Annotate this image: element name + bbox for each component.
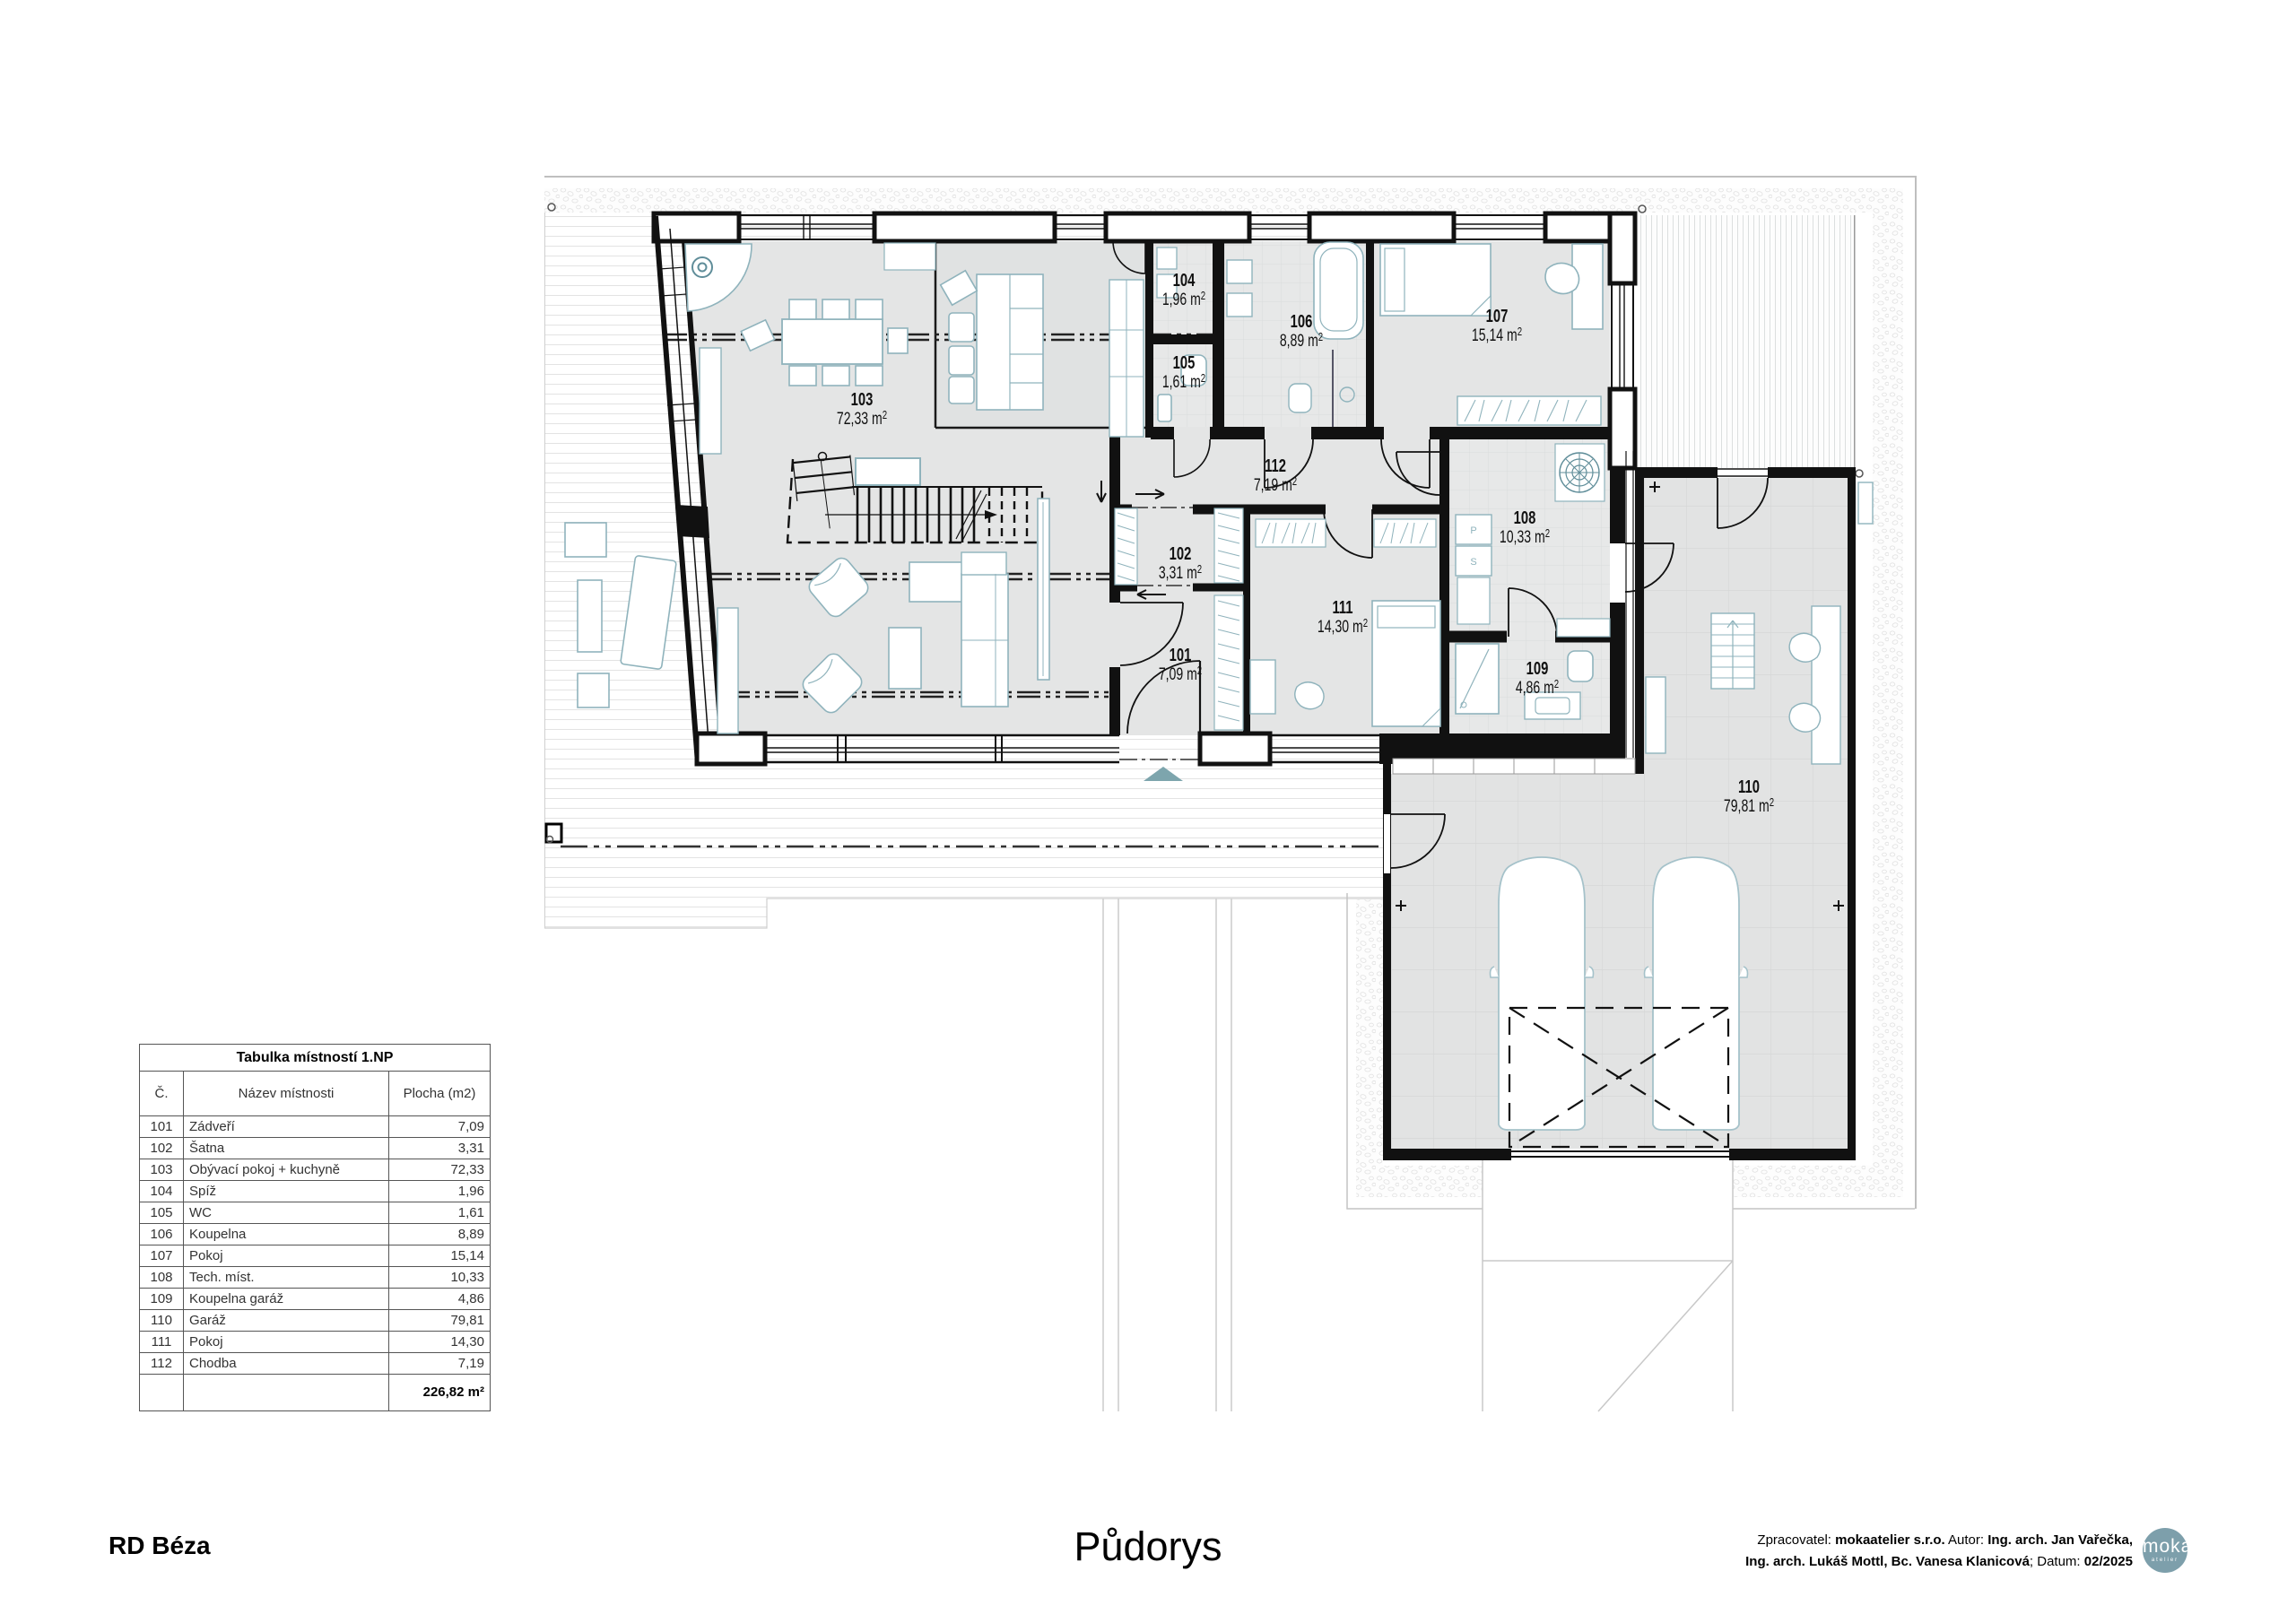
svg-text:109: 109: [1526, 658, 1549, 679]
svg-text:108: 108: [1514, 508, 1536, 528]
svg-text:7,09 m2: 7,09 m2: [1159, 664, 1202, 684]
svg-text:8,89 m2: 8,89 m2: [1280, 331, 1323, 351]
svg-text:S: S: [1470, 557, 1476, 568]
svg-text:103: 103: [851, 389, 874, 410]
svg-text:111: 111: [1332, 597, 1352, 618]
svg-text:105: 105: [1173, 352, 1196, 373]
svg-text:104: 104: [1173, 270, 1196, 291]
svg-text:107: 107: [1486, 306, 1509, 326]
svg-text:72,33 m2: 72,33 m2: [837, 409, 887, 429]
svg-text:14,30 m2: 14,30 m2: [1318, 617, 1368, 637]
svg-text:15,14 m2: 15,14 m2: [1472, 325, 1522, 345]
svg-text:P: P: [1470, 525, 1476, 536]
svg-text:4,86 m2: 4,86 m2: [1516, 678, 1559, 698]
svg-text:1,61 m2: 1,61 m2: [1162, 372, 1205, 392]
svg-text:1,96 m2: 1,96 m2: [1162, 290, 1205, 309]
svg-text:7,19 m2: 7,19 m2: [1254, 475, 1297, 495]
svg-text:106: 106: [1291, 311, 1313, 332]
svg-text:10,33 m2: 10,33 m2: [1500, 527, 1550, 547]
svg-text:102: 102: [1170, 543, 1192, 564]
svg-text:112: 112: [1265, 456, 1286, 476]
svg-text:101: 101: [1170, 645, 1192, 665]
svg-text:79,81 m2: 79,81 m2: [1724, 796, 1774, 816]
svg-text:3,31 m2: 3,31 m2: [1159, 563, 1202, 583]
svg-text:110: 110: [1738, 777, 1760, 797]
